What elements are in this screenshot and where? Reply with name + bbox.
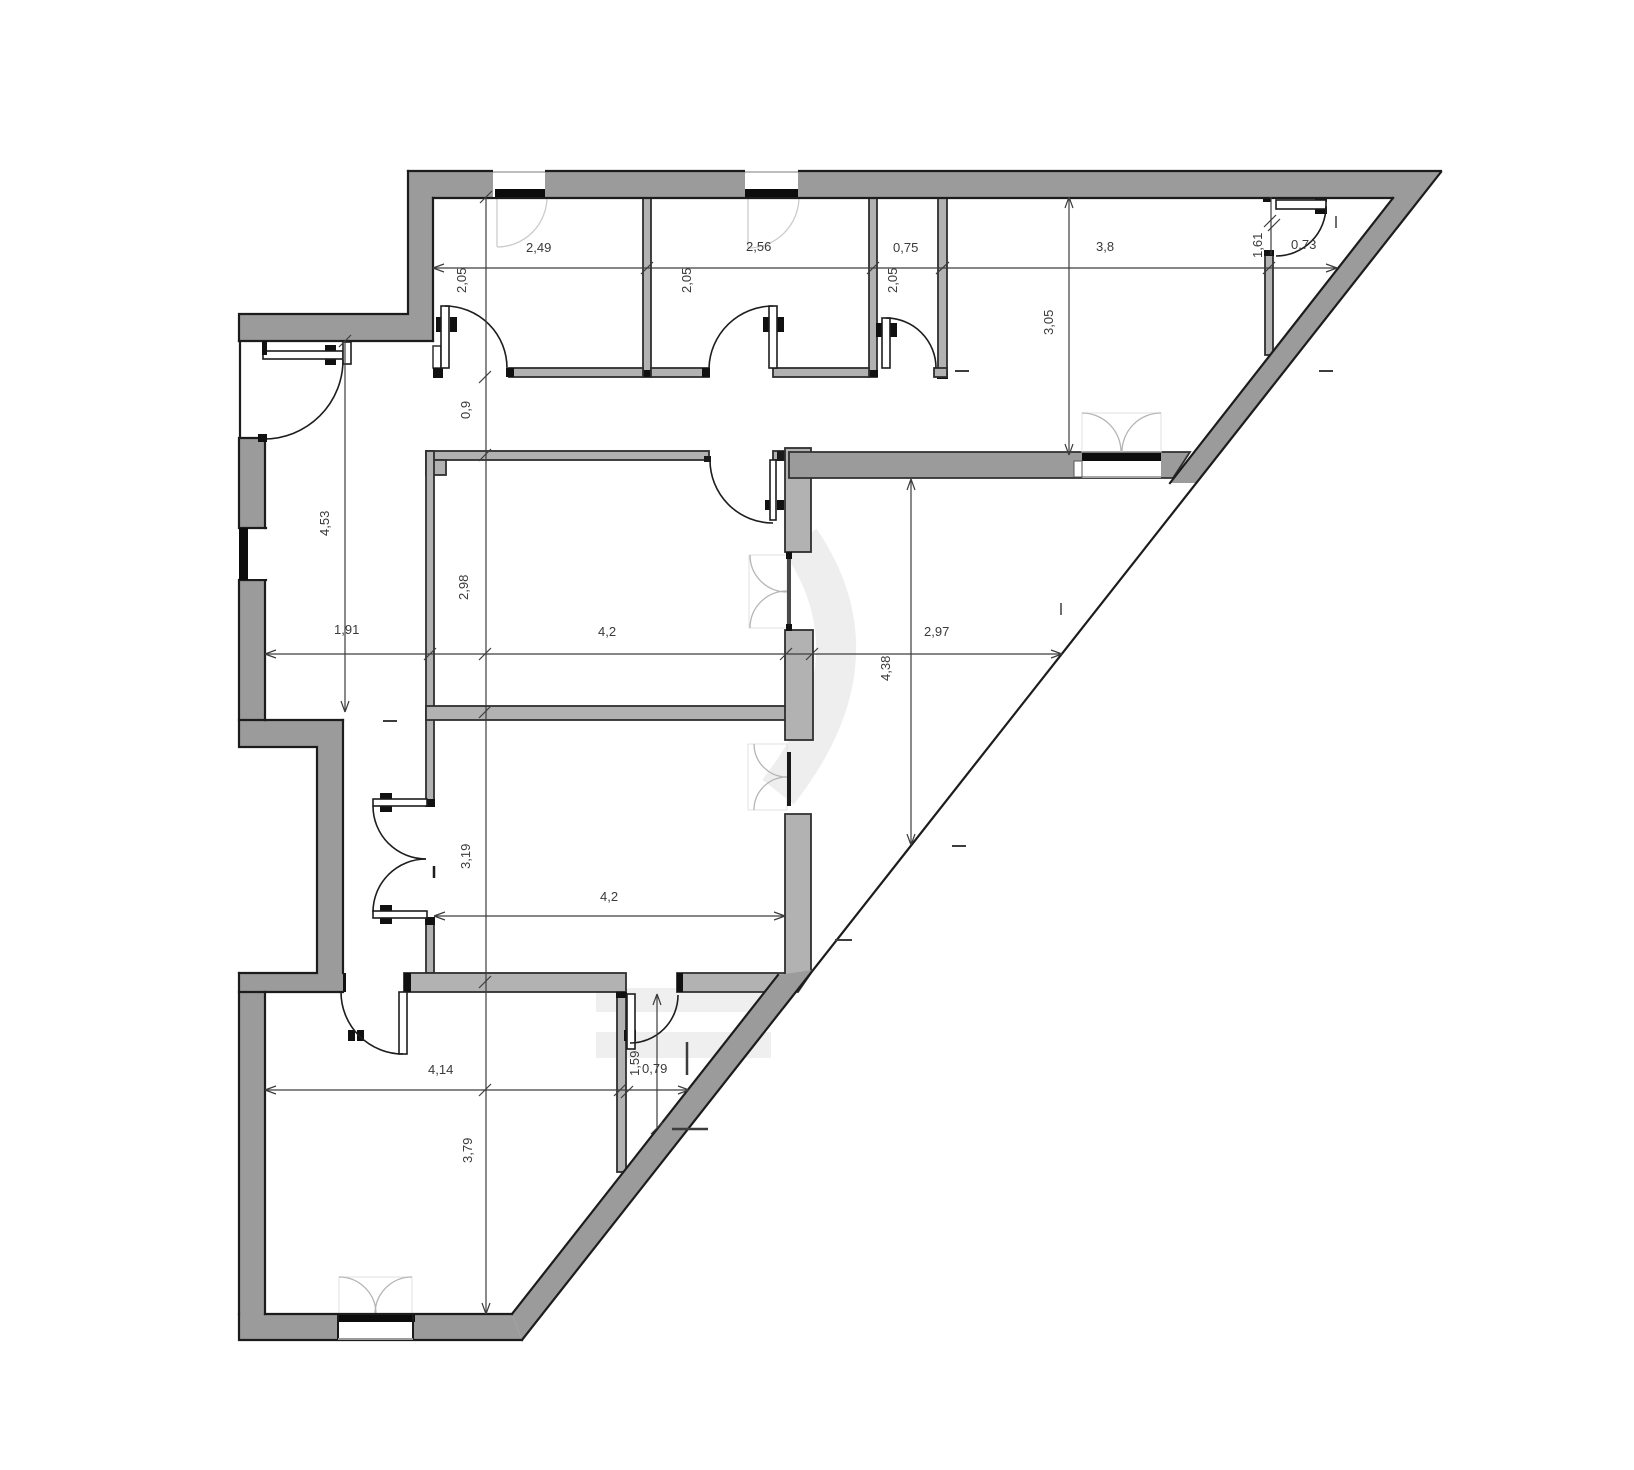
svg-text:4,53: 4,53 xyxy=(317,511,332,536)
svg-text:4,14: 4,14 xyxy=(428,1062,453,1077)
svg-text:0,9: 0,9 xyxy=(458,401,473,419)
svg-text:2,05: 2,05 xyxy=(454,268,469,293)
svg-text:0,75: 0,75 xyxy=(893,240,918,255)
svg-text:1,91: 1,91 xyxy=(334,622,359,637)
svg-text:3,79: 3,79 xyxy=(460,1138,475,1163)
svg-text:3,8: 3,8 xyxy=(1096,239,1114,254)
svg-text:0,73: 0,73 xyxy=(1291,237,1316,252)
svg-text:2,05: 2,05 xyxy=(679,268,694,293)
svg-text:0,79: 0,79 xyxy=(642,1061,667,1076)
svg-text:1,61: 1,61 xyxy=(1250,233,1265,258)
svg-text:2,56: 2,56 xyxy=(746,239,771,254)
svg-text:2,49: 2,49 xyxy=(526,240,551,255)
svg-text:4,38: 4,38 xyxy=(878,656,893,681)
svg-text:3,05: 3,05 xyxy=(1041,310,1056,335)
svg-text:2,05: 2,05 xyxy=(885,268,900,293)
svg-text:1,59: 1,59 xyxy=(627,1051,642,1076)
svg-text:2,98: 2,98 xyxy=(456,575,471,600)
svg-text:4,2: 4,2 xyxy=(598,624,616,639)
svg-text:4,2: 4,2 xyxy=(600,889,618,904)
svg-text:3,19: 3,19 xyxy=(458,844,473,869)
svg-text:2,97: 2,97 xyxy=(924,624,949,639)
